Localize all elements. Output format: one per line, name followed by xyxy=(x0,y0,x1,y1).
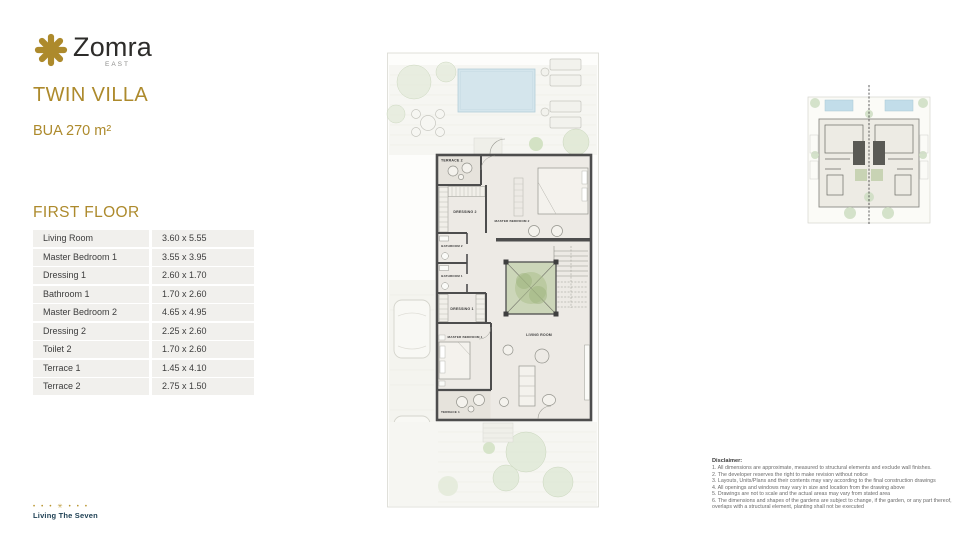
disclaimer-line: 6. The dimensions and shapes of the gard… xyxy=(712,498,954,511)
side-table-icon xyxy=(458,174,463,179)
sink-icon xyxy=(440,266,449,271)
tree-icon xyxy=(543,467,573,497)
footer-brand: • • • ✳ • • • Living The Seven xyxy=(33,504,98,520)
toilet-icon xyxy=(442,283,449,290)
garden-steps xyxy=(483,423,513,442)
chair-icon xyxy=(457,397,468,408)
tree-icon xyxy=(438,476,458,496)
wardrobe xyxy=(439,295,448,322)
room-name-cell: Master Bedroom 1 xyxy=(33,249,149,266)
table-row: Bathroom 11.70 x 2.60 xyxy=(33,286,254,303)
tree-icon xyxy=(493,465,519,491)
brand-logo: Zomra EAST xyxy=(33,28,193,72)
room-dimensions-cell: 4.65 x 4.95 xyxy=(152,304,254,321)
room-label: BATHROOM 2 xyxy=(441,244,463,248)
table-row: Master Bedroom 13.55 x 3.95 xyxy=(33,249,254,266)
bottom-garden xyxy=(389,422,597,506)
toilet-icon xyxy=(442,253,449,260)
chair-icon xyxy=(474,395,485,406)
side-table-icon xyxy=(468,406,474,412)
brand-name: Zomra xyxy=(73,32,152,63)
room-name-cell: Dressing 2 xyxy=(33,323,149,340)
room-label: MASTER BEDROOM 2 xyxy=(494,219,529,223)
nightstand-icon xyxy=(439,335,445,340)
table-row: Dressing 22.25 x 2.60 xyxy=(33,323,254,340)
table-row: Dressing 12.60 x 1.70 xyxy=(33,267,254,284)
floor-heading: FIRST FLOOR xyxy=(33,204,140,222)
chair-icon xyxy=(448,166,458,176)
chair-icon xyxy=(529,226,540,237)
bua-value: BUA 270 m² xyxy=(33,123,111,139)
footer-tagline: Living The Seven xyxy=(33,511,98,520)
room-name-cell: Bathroom 1 xyxy=(33,286,149,303)
brand-region: EAST xyxy=(105,61,130,68)
table-row: Master Bedroom 24.65 x 4.95 xyxy=(33,304,254,321)
room-name-cell: Terrace 1 xyxy=(33,360,149,377)
room-label: MASTER BEDROOM 1 xyxy=(447,335,482,339)
room-name-cell: Terrace 2 xyxy=(33,378,149,395)
room-label: TERRACE 1 xyxy=(441,410,460,414)
tree-icon xyxy=(436,62,456,82)
swimming-pool xyxy=(458,69,535,112)
sink-icon xyxy=(440,236,449,241)
pool-icon xyxy=(825,100,853,111)
room-name-cell: Dressing 1 xyxy=(33,267,149,284)
room-label: BATHROOM 1 xyxy=(441,274,463,278)
courtyard-icon xyxy=(871,169,883,181)
courtyard xyxy=(504,260,559,317)
bed-icon xyxy=(538,168,588,214)
room-dimensions-table: Living Room3.60 x 5.55 Master Bedroom 13… xyxy=(33,230,254,397)
tree-icon xyxy=(397,65,431,99)
disclaimer-line: 1. All dimensions are approximate, measu… xyxy=(712,465,954,472)
tree-icon xyxy=(387,105,405,123)
wardrobe xyxy=(476,295,485,322)
room-dimensions-cell: 3.55 x 3.95 xyxy=(152,249,254,266)
brochure-page: Zomra EAST TWIN VILLA BUA 270 m² FIRST F… xyxy=(0,0,960,540)
room-terrace-1: TERRACE 1 xyxy=(439,392,491,419)
chair-icon xyxy=(462,163,472,173)
room-name-cell: Living Room xyxy=(33,230,149,247)
console-unit xyxy=(585,345,590,400)
courtyard-icon xyxy=(855,169,867,181)
entry-steps xyxy=(474,138,502,154)
shrub-icon xyxy=(483,442,495,454)
table-row: Terrace 11.45 x 4.10 xyxy=(33,360,254,377)
room-dimensions-cell: 2.60 x 1.70 xyxy=(152,267,254,284)
top-garden xyxy=(387,59,597,155)
twin-villa-key-plan xyxy=(805,83,933,226)
shrub-icon xyxy=(529,137,543,151)
table-row: Terrace 22.75 x 1.50 xyxy=(33,378,254,395)
armchair-icon xyxy=(503,345,513,355)
stair-block xyxy=(853,141,865,165)
room-terrace-2: TERRACE 2 xyxy=(438,156,481,185)
table-row: Toilet 21.70 x 2.60 xyxy=(33,341,254,358)
chair-icon xyxy=(552,226,563,237)
stair-block xyxy=(873,141,885,165)
room-dimensions-cell: 1.70 x 2.60 xyxy=(152,341,254,358)
chair-icon xyxy=(500,398,509,407)
disclaimer-block: Disclaimer: 1. All dimensions are approx… xyxy=(712,458,954,511)
room-label: TERRACE 2 xyxy=(441,159,463,163)
tree-icon xyxy=(563,129,589,155)
room-label: DRESSING 1 xyxy=(450,307,473,311)
disclaimer-line: 3. Layouts, Units/Plans and their conten… xyxy=(712,478,954,485)
floor-plan: TERRACE 2 DRESSING 2 BATHROOM 2 xyxy=(386,50,601,510)
room-dimensions-cell: 2.75 x 1.50 xyxy=(152,378,254,395)
room-label: DRESSING 2 xyxy=(453,210,476,214)
lounge-chair-icon xyxy=(543,395,556,406)
wardrobe xyxy=(448,187,485,197)
room-dimensions-cell: 1.70 x 2.60 xyxy=(152,286,254,303)
seven-stars-icon: • • • ✳ • • • xyxy=(33,504,98,511)
unit-type-title: TWIN VILLA xyxy=(33,84,148,107)
room-label: LIVING ROOM xyxy=(526,333,552,337)
room-dimensions-cell: 2.25 x 2.60 xyxy=(152,323,254,340)
room-dimensions-cell: 3.60 x 5.55 xyxy=(152,230,254,247)
room-dimensions-cell: 1.45 x 4.10 xyxy=(152,360,254,377)
room-name-cell: Master Bedroom 2 xyxy=(33,304,149,321)
room-name-cell: Toilet 2 xyxy=(33,341,149,358)
zomra-flower-icon xyxy=(33,32,69,68)
nightstand-icon xyxy=(439,381,445,386)
pool-icon xyxy=(885,100,913,111)
wardrobe xyxy=(439,187,448,232)
table-row: Living Room3.60 x 5.55 xyxy=(33,230,254,247)
disclaimer-title: Disclaimer: xyxy=(712,458,954,464)
